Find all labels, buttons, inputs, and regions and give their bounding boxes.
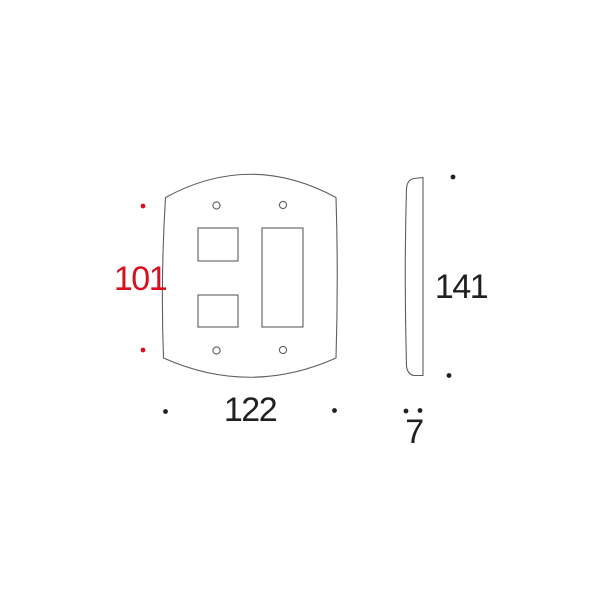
cutout-square-bottom [198,295,238,327]
height-dimension-label: 141 [435,268,488,306]
screw-hole-bottom-left [213,347,220,354]
drawing-canvas: 101 122 141 7 [0,0,600,600]
dimension-labels: 101 122 141 7 [114,260,488,451]
front-view [162,174,337,377]
width-tick-dot-right [332,408,337,413]
width-tick-dot-left [163,409,168,414]
screw-hole-top-right [279,201,286,208]
thickness-dimension-label: 7 [405,413,423,451]
width-dimension-label: 122 [224,391,277,429]
screw-hole-top-left [213,202,220,209]
dimension-tick-marks [141,175,456,414]
cutout-rocker [262,228,303,327]
hole-spacing-tick-dot-top [141,204,146,209]
hole-spacing-dimension-label: 101 [114,260,167,298]
height-tick-dot-top [451,175,456,180]
cutout-square-top [198,228,238,261]
technical-drawing: 101 122 141 7 [0,0,600,600]
screw-hole-bottom-right [279,346,286,353]
side-profile-outline [405,178,423,376]
height-tick-dot-bottom [447,373,452,378]
plate-outline [162,174,337,377]
side-view [405,178,423,376]
hole-spacing-tick-dot-bottom [141,348,146,353]
